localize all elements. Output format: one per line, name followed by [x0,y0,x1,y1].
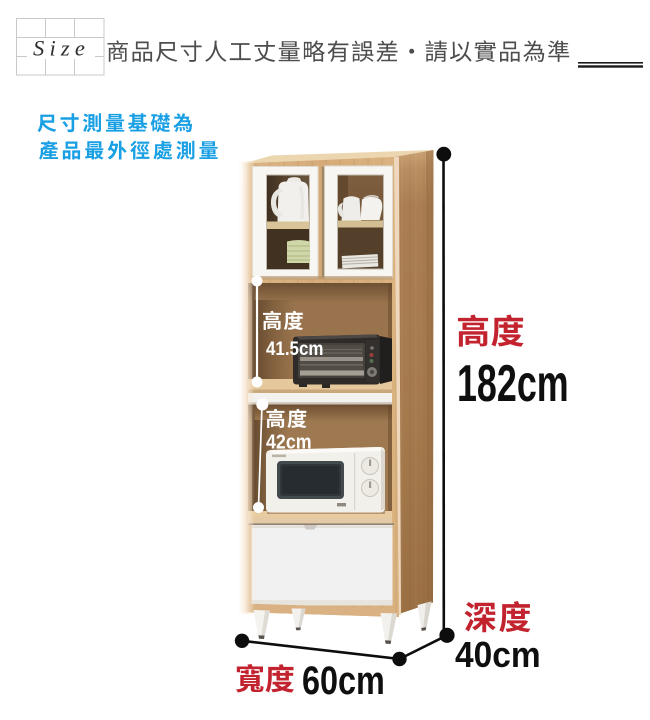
svg-text:182cm: 182cm [457,356,569,413]
svg-text:42cm: 42cm [266,431,312,453]
svg-text:60cm: 60cm [302,658,385,703]
svg-text:Size: Size [33,36,90,61]
svg-text:40cm: 40cm [455,636,541,675]
svg-text:41.5cm: 41.5cm [266,337,324,359]
